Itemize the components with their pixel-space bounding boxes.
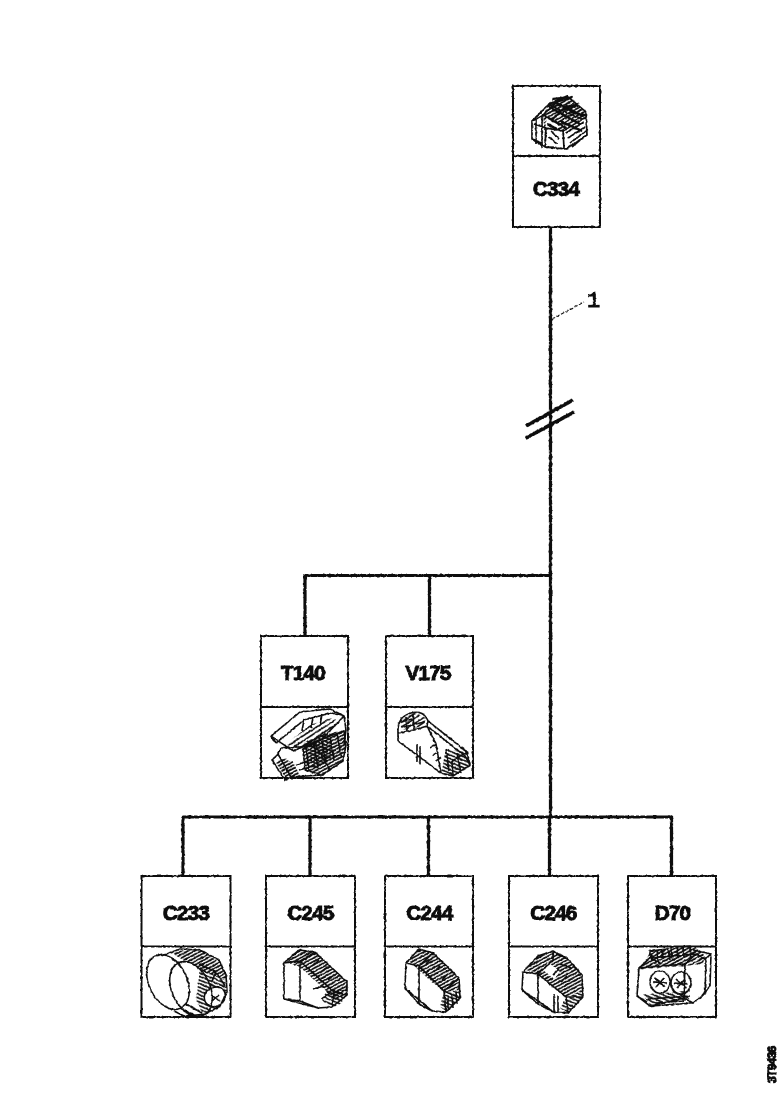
svg-text:D70: D70 bbox=[655, 902, 691, 925]
svg-text:3T9436: 3T9436 bbox=[765, 1045, 778, 1083]
svg-text:1: 1 bbox=[587, 289, 600, 314]
svg-text:C334: C334 bbox=[533, 178, 581, 201]
svg-text:C233: C233 bbox=[163, 902, 210, 925]
svg-text:V175: V175 bbox=[405, 662, 450, 685]
svg-text:T140: T140 bbox=[281, 662, 325, 685]
svg-text:C244: C244 bbox=[406, 902, 454, 925]
svg-text:C245: C245 bbox=[287, 902, 334, 925]
svg-text:C246: C246 bbox=[530, 902, 577, 925]
